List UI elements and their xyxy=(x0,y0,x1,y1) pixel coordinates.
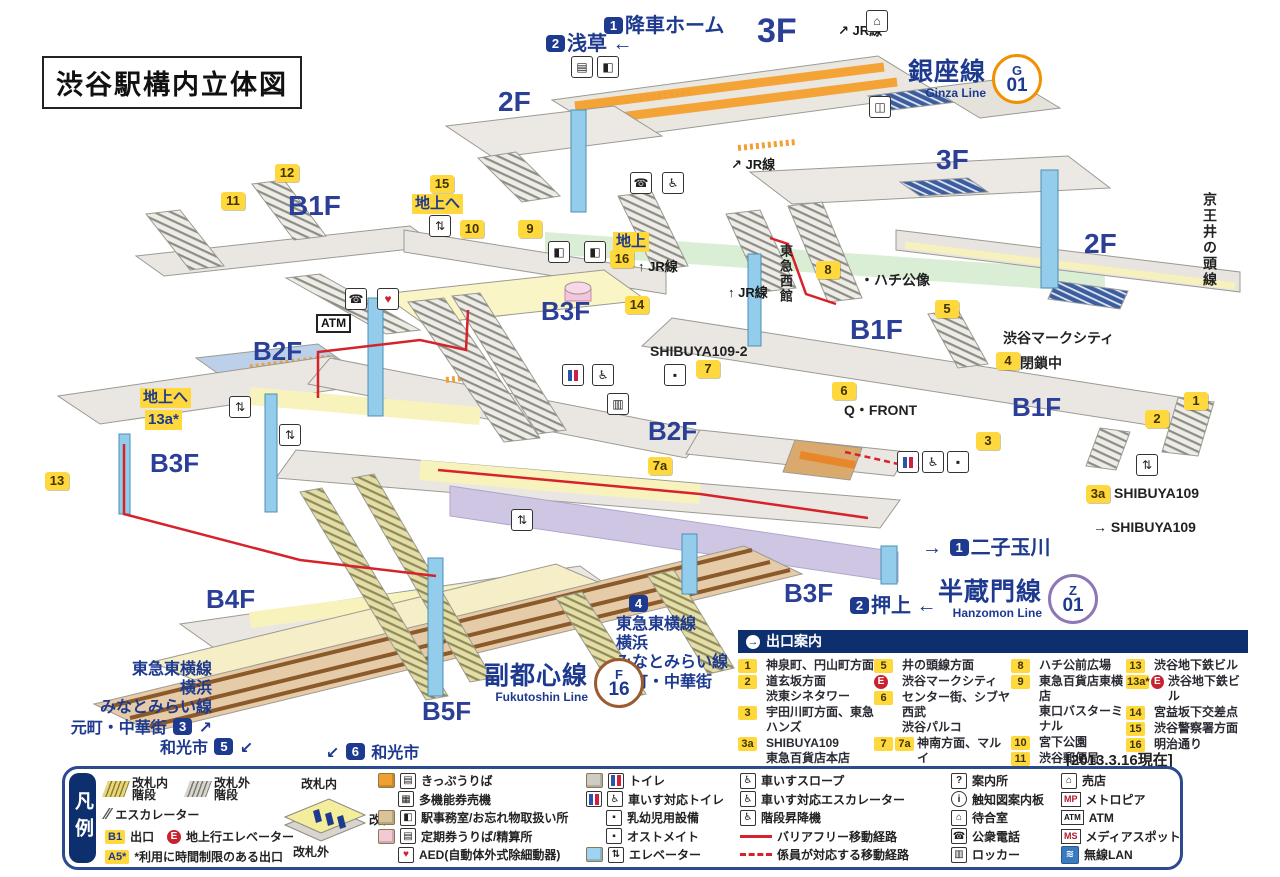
legend-item: ♥AED(自動体外式除細動器) xyxy=(378,847,568,862)
legend-item: E地上行エレベーター xyxy=(167,830,294,844)
ground-tag: 地上 xyxy=(613,232,649,252)
direction-label: 4 xyxy=(627,595,650,615)
legend-item-label: トイレ xyxy=(629,772,665,789)
floor-label-b1f: B1F xyxy=(850,314,903,346)
baby-icon: ▪ xyxy=(664,364,686,386)
exit-guide-column-2: 5井の頭線方面E渋谷マークシティ6センター街、シブヤ西武渋谷パルコ77a神南方面… xyxy=(874,658,1011,783)
exit-icon: → xyxy=(746,635,760,649)
exit-number-badge: 10 xyxy=(1011,736,1030,750)
exit-number-badge: 13 xyxy=(1126,659,1145,673)
exit-badge-15: 15 xyxy=(430,175,454,193)
hanzomon-line-name-en: Hanzomon Line xyxy=(953,607,1042,619)
exit-destination: 東急百貨店東横店東口バスターミナル xyxy=(1039,674,1126,734)
exit-guide-row: 9東急百貨店東横店東口バスターミナル xyxy=(1011,674,1126,734)
jr-line-label: ↗ JR線 xyxy=(731,154,775,173)
exit-number-badge: 1 xyxy=(738,659,757,673)
legend-item-label: 案内所 xyxy=(972,772,1008,789)
pictogram-icon: ▤ xyxy=(400,828,416,844)
exit-chip-icon: A5* xyxy=(105,850,129,864)
exit-guide-row: 15渋谷警察署方面 xyxy=(1126,721,1246,736)
place-label: ・ハチ公像 xyxy=(860,270,930,290)
exit-guide-column-1: 1神泉町、円山町方面2道玄坂方面渋東シネタワー3宇田川町方面、東急ハンズ3aSH… xyxy=(738,658,874,783)
legend-panel: 凡例 改札内 階段改札外 階段∕∕エスカレーターB1出口E地上行エレベーターA5… xyxy=(62,766,1183,870)
floor-label-b2f: B2F xyxy=(253,336,302,367)
legend-item-label: バリアフリー移動経路 xyxy=(777,828,897,845)
facility-cube-icon xyxy=(586,773,603,788)
exit-guide-row: 2道玄坂方面渋東シネタワー xyxy=(738,674,874,704)
staff-assist-route-swatch xyxy=(740,853,772,856)
exit-destination: 宮下公園 xyxy=(1039,735,1087,750)
elevator-icon: ⇅ xyxy=(1136,454,1158,476)
legend-item-label: 売店 xyxy=(1082,772,1106,789)
legend-item: i触知図案内板 xyxy=(951,792,1044,807)
toilet-icon xyxy=(562,364,584,386)
shop-icon: ⌂ xyxy=(866,10,888,32)
elevator-icon: ⇅ xyxy=(429,215,451,237)
exit-number-badge: 15 xyxy=(1126,722,1145,736)
legend-item-label: 定期券うりば/精算所 xyxy=(421,828,532,845)
bus-icon: ◫ xyxy=(869,96,891,118)
exit-destination: ハチ公前広場 xyxy=(1039,658,1111,673)
legend-item: MSメディアスポット xyxy=(1061,829,1181,844)
legend-item: ♿車いす対応トイレ xyxy=(586,792,724,807)
pictogram-icon: ▪ xyxy=(606,810,622,826)
hanzomon-line-name: 半蔵門線 xyxy=(938,580,1042,605)
ginza-line-name: 銀座線 xyxy=(908,60,986,85)
ginza-line-name-en: Ginza Line xyxy=(925,87,986,99)
facility-cube-icon xyxy=(378,773,395,788)
pictogram-icon: ☎ xyxy=(951,828,967,844)
ginza-station-code: G 01 xyxy=(992,54,1042,104)
fukutoshin-line-name: 副都心線 xyxy=(484,664,588,689)
legend-group-accessibility: ♿車いすスロープ♿車いす対応エスカレーター♿階段昇降機バリアフリー移動経路係員が… xyxy=(740,773,909,866)
exit-badge-13: 13 xyxy=(45,472,69,490)
phone-icon: ☎ xyxy=(630,172,652,194)
exit-badge-11: 11 xyxy=(221,192,245,210)
legend-item: ▤定期券うりば/精算所 xyxy=(378,829,568,844)
brand-chip-icon: MS xyxy=(1061,829,1081,844)
floor-label-b2f: B2F xyxy=(648,416,697,447)
shibuya-station-3d-map: 3F2F3F2FB1FB1FB1FB2FB2FB3FB3FB3FB4FB5F12… xyxy=(0,0,1280,877)
legend-group-services: ?案内所i触知図案内板⌂待合室☎公衆電話▥ロッカー xyxy=(951,773,1044,866)
locker-icon: ▥ xyxy=(607,393,629,415)
direction-label: 2押上 ← xyxy=(848,594,937,618)
pictogram-icon: i xyxy=(951,791,967,807)
legend-item-label: AED(自動体外式除細動器) xyxy=(419,846,560,863)
legend-item-label: きっぷうりば xyxy=(421,772,493,789)
jr-line-label: ↑ JR線 xyxy=(638,256,678,275)
legend-group-facilities: トイレ♿車いす対応トイレ▪乳幼児用設備▪オストメイト⇅エレベーター xyxy=(586,773,724,866)
page-title: 渋谷駅構内立体図 xyxy=(42,56,302,109)
barrier-free-route-swatch xyxy=(740,835,772,838)
aed-icon: ♥ xyxy=(377,288,399,310)
legend-item-label: エスカレーター xyxy=(115,809,199,821)
exit-badge-8: 8 xyxy=(816,261,840,279)
exit-badge-16: 16 xyxy=(610,250,634,268)
exit-number-badge: 2 xyxy=(738,675,757,689)
exit-guide-row: 13渋谷地下鉄ビル xyxy=(1126,658,1246,673)
hanzomon-line-badge: 半蔵門線 Hanzomon Line Z 01 xyxy=(938,574,1098,624)
pictogram-icon: ▦ xyxy=(398,791,414,807)
floor-label-3f: 3F xyxy=(936,144,969,176)
legend-item-label: 係員が対応する移動経路 xyxy=(777,846,909,863)
inside-gate-stairs-icon xyxy=(102,781,130,797)
legend-item-label: 出口 xyxy=(130,831,154,843)
exit-badge-7: 7 xyxy=(696,360,720,378)
legend-group-shops: ⌂売店MPメトロピアATMATMMSメディアスポット≋無線LAN xyxy=(1061,773,1181,866)
elevator-chip-icon: E xyxy=(167,830,181,844)
legend-item: ATMATM xyxy=(1061,810,1181,825)
floor-label-b3f: B3F xyxy=(784,578,833,609)
ground-tag: 13a* xyxy=(145,410,182,430)
fukutoshin-line-name-en: Fukutoshin Line xyxy=(495,691,588,703)
aed-icon: ♥ xyxy=(398,847,414,863)
wheelchair-icon: ♿ xyxy=(592,364,614,386)
exit-destination: 宮益坂下交差点 xyxy=(1154,705,1238,720)
exit-guide-title: 出口案内 xyxy=(766,630,822,653)
legend-item-label: ATM xyxy=(1089,811,1114,825)
exit-badge-3a: 3a xyxy=(1086,485,1110,503)
exit-destination: SHIBUYA109東急百貨店本店 xyxy=(766,736,850,766)
pictogram-icon: ♿ xyxy=(740,773,756,789)
wheelchair-icon: ♿ xyxy=(922,451,944,473)
legend-item: ∕∕エスカレーター xyxy=(105,809,199,821)
ginza-line-badge: 銀座線 Ginza Line G 01 xyxy=(908,54,1042,104)
pictogram-icon: ? xyxy=(951,773,967,789)
exit-chip-icon: B1 xyxy=(105,830,125,844)
floor-label-b5f: B5F xyxy=(422,696,471,727)
exit-destination: 宇田川町方面、東急ハンズ xyxy=(766,705,874,735)
elevator-exit-badge: E xyxy=(874,675,888,689)
office-icon: ◧ xyxy=(597,56,619,78)
exit-guide-row: 10宮下公園 xyxy=(1011,735,1126,750)
office-icon: ◧ xyxy=(548,241,570,263)
direction-label: 2浅草 ← xyxy=(544,32,633,56)
exit-number-badge: 6 xyxy=(874,691,893,705)
direction-label: 東急東横線横浜みなとみらい線元町・中華街 3 ↗ xyxy=(52,660,212,738)
pictogram-icon: ◧ xyxy=(400,810,416,826)
place-label: SHIBUYA109-2 xyxy=(650,343,748,359)
exit-badge-1: 1 xyxy=(1184,392,1208,410)
exit-badge-4: 4 xyxy=(996,352,1020,370)
exit-badge-7a: 7a xyxy=(648,457,672,475)
pictogram-icon: ♿ xyxy=(740,810,756,826)
exit-badge-3: 3 xyxy=(976,432,1000,450)
gate-diagram-drawing xyxy=(279,789,379,849)
exit-number-badge: 3a xyxy=(738,737,757,751)
direction-label: → 1二子玉川 xyxy=(922,536,1051,560)
legend-item-label: 車いす対応エスカレーター xyxy=(761,791,905,808)
exit-destination: 渋谷地下鉄ビル xyxy=(1168,674,1246,704)
direction-label: ↙ 6 和光市 xyxy=(326,743,419,763)
floor-label-b1f: B1F xyxy=(288,190,341,222)
legend-group-ticketing: ▤きっぷうりば▦多機能券売機◧駅事務室/お忘れ物取扱い所▤定期券うりば/精算所♥… xyxy=(378,773,568,866)
legend-item: ▥ロッカー xyxy=(951,847,1044,862)
legend-item: ≋無線LAN xyxy=(1061,847,1181,862)
legend-item-label: 公衆電話 xyxy=(972,828,1020,845)
exit-number-badge: 5 xyxy=(874,659,893,673)
legend-item: ⌂売店 xyxy=(1061,773,1181,788)
floor-label-b4f: B4F xyxy=(206,584,255,615)
exit-number-badge: 8 xyxy=(1011,659,1030,673)
place-label: Q・FRONT xyxy=(844,400,917,420)
exit-badge-14: 14 xyxy=(625,296,649,314)
legend-item: ♿車いす対応エスカレーター xyxy=(740,792,909,807)
exit-badge-12: 12 xyxy=(275,164,299,182)
exit-guide-row: 1神泉町、円山町方面 xyxy=(738,658,874,673)
legend-item-label: ロッカー xyxy=(972,846,1020,863)
exit-number-badge: 7 xyxy=(874,737,893,751)
legend-item: ▪オストメイト xyxy=(586,829,724,844)
legend-item-label: 地上行エレベーター xyxy=(186,831,294,843)
pictogram-icon: ▥ xyxy=(951,847,967,863)
pictogram-icon: ♿ xyxy=(607,791,623,807)
exit-destination: 神泉町、円山町方面 xyxy=(766,658,874,673)
legend-item: ♿車いすスロープ xyxy=(740,773,909,788)
legend-item: ♿階段昇降機 xyxy=(740,810,909,825)
floor-label-2f: 2F xyxy=(498,86,531,118)
legend-item: トイレ xyxy=(586,773,724,788)
exit-destination: 渋谷警察署方面 xyxy=(1154,721,1238,736)
exit-guide-row: 8ハチ公前広場 xyxy=(1011,658,1126,673)
elevator-icon: ⇅ xyxy=(511,509,533,531)
legend-item: 改札内 階段 xyxy=(105,777,168,801)
exit-guide-row: 6センター街、シブヤ西武渋谷パルコ xyxy=(874,690,1011,735)
legend-item: ▪乳幼児用設備 xyxy=(586,810,724,825)
atm-sign: ATM xyxy=(316,314,351,333)
legend-item: ☎公衆電話 xyxy=(951,829,1044,844)
exit-number-badge: 11 xyxy=(1011,752,1030,766)
exit-destination: 井の頭線方面 xyxy=(902,658,974,673)
legend-item-label: エレベーター xyxy=(629,846,701,863)
phone-icon: ☎ xyxy=(345,288,367,310)
floor-label-b3f: B3F xyxy=(150,448,199,479)
pictogram-icon: ⇅ xyxy=(608,847,624,863)
place-label: → SHIBUYA109 xyxy=(1093,519,1196,535)
legend-item-label: 乳幼児用設備 xyxy=(627,809,699,826)
facility-cube-icon xyxy=(586,847,603,862)
toilet-icon xyxy=(586,791,602,807)
exit-badge-2: 2 xyxy=(1145,410,1169,428)
pictogram-icon: ⌂ xyxy=(1061,773,1077,789)
elevator-icon: ⇅ xyxy=(279,424,301,446)
ticket-icon: ▤ xyxy=(571,56,593,78)
pictogram-icon: ♿ xyxy=(740,791,756,807)
hanzomon-station-code: Z 01 xyxy=(1048,574,1098,624)
ground-tag: 地上へ xyxy=(412,194,463,214)
exit-guide-row: 3宇田川町方面、東急ハンズ xyxy=(738,705,874,735)
legend-item: ⇅エレベーター xyxy=(586,847,724,862)
brand-chip-icon: MP xyxy=(1061,792,1081,807)
wheelchair-icon: ♿ xyxy=(662,172,684,194)
exit-number-badge: 7a xyxy=(895,737,914,751)
legend-item-label: 車いす対応トイレ xyxy=(628,791,724,808)
exit-destination: 渋谷地下鉄ビル xyxy=(1154,658,1238,673)
legend-item: 係員が対応する移動経路 xyxy=(740,847,909,862)
place-label: SHIBUYA109 xyxy=(1114,485,1199,501)
exit-number-badge: 9 xyxy=(1011,675,1030,689)
fukutoshin-line-badge: 副都心線 Fukutoshin Line F 16 xyxy=(484,658,644,708)
office-icon: ◧ xyxy=(584,241,606,263)
legend-item: 改札外 階段 xyxy=(187,777,250,801)
outside-gate-stairs-icon xyxy=(184,781,212,797)
exit-number-badge: 14 xyxy=(1126,706,1145,720)
legend-item-label: 改札外 階段 xyxy=(214,777,250,801)
exit-guide-row: 3aSHIBUYA109東急百貨店本店 xyxy=(738,736,874,766)
legend-item: ◧駅事務室/お忘れ物取扱い所 xyxy=(378,810,568,825)
place-label-vertical: 東急西館 xyxy=(776,244,795,304)
legend-item-label: メトロピア xyxy=(1086,791,1146,808)
legend-item-label: 多機能券売機 xyxy=(419,791,491,808)
legend-item-label: オストメイト xyxy=(627,828,699,845)
ground-tag: 地上へ xyxy=(140,388,191,408)
legend-item: ▤きっぷうりば xyxy=(378,773,568,788)
exit-badge-6: 6 xyxy=(832,382,856,400)
facility-cube-icon xyxy=(378,829,395,844)
escalator-icon: ∕∕ xyxy=(105,809,110,821)
legend-item: ⌂待合室 xyxy=(951,810,1044,825)
legend-item-label: *利用に時間制限のある出口 xyxy=(134,851,283,863)
legend-item: B1出口 xyxy=(105,830,154,844)
facility-cube-icon xyxy=(378,810,395,825)
direction-label: 和光市 5 ↙ xyxy=(160,738,253,758)
fukutoshin-station-code: F 16 xyxy=(594,658,644,708)
elevator-exit-badge: E xyxy=(1151,675,1164,689)
exit-guide-row: 14宮益坂下交差点 xyxy=(1126,705,1246,720)
legend-item-label: 階段昇降機 xyxy=(761,809,821,826)
place-label: 渋谷マークシティ xyxy=(1003,328,1114,348)
legend-item-label: 無線LAN xyxy=(1084,846,1133,863)
wireless-lan-icon: ≋ xyxy=(1061,846,1079,864)
atm-chip-icon: ATM xyxy=(1061,810,1084,825)
jr-line-label: ↑ JR線 xyxy=(728,282,768,301)
place-label: 閉鎖中 xyxy=(1020,353,1062,373)
pictogram-icon: ▪ xyxy=(606,828,622,844)
exit-badge-10: 10 xyxy=(460,220,484,238)
legend-item: ?案内所 xyxy=(951,773,1044,788)
legend-item-label: 触知図案内板 xyxy=(972,791,1044,808)
legend-item: MPメトロピア xyxy=(1061,792,1181,807)
legend-item: ▦多機能券売機 xyxy=(378,792,568,807)
legend-item-label: 待合室 xyxy=(972,809,1008,826)
floor-label-2f: 2F xyxy=(1084,228,1117,260)
pictogram-icon: ⌂ xyxy=(951,810,967,826)
floor-label-b1f: B1F xyxy=(1012,392,1061,423)
place-label-vertical: 京王井の頭線 xyxy=(1200,192,1220,288)
baby-icon: ▪ xyxy=(947,451,969,473)
legend-item: バリアフリー移動経路 xyxy=(740,829,909,844)
legend-item-label: 車いすスロープ xyxy=(761,772,844,789)
legend-item-label: 改札内 階段 xyxy=(132,777,168,801)
pictogram-icon: ▤ xyxy=(400,773,416,789)
exit-destination: センター街、シブヤ西武渋谷パルコ xyxy=(902,690,1011,735)
floor-label-3f: 3F xyxy=(757,12,797,51)
exit-destination: 道玄坂方面渋東シネタワー xyxy=(766,674,850,704)
toilet-icon xyxy=(608,773,624,789)
legend-item-label: メディアスポット xyxy=(1086,828,1181,845)
exit-guide-header: → 出口案内 xyxy=(738,630,1248,653)
exit-guide-row: E渋谷マークシティ xyxy=(874,674,1011,689)
legend-item-label: 駅事務室/お忘れ物取扱い所 xyxy=(421,809,568,826)
exit-guide-row: 13a*E渋谷地下鉄ビル xyxy=(1126,674,1246,704)
exit-number-badge: 3 xyxy=(738,706,757,720)
floor-label-b3f: B3F xyxy=(541,296,590,327)
gate-outside-label: 改札外 xyxy=(293,843,329,860)
exit-guide-row: 5井の頭線方面 xyxy=(874,658,1011,673)
legend-tab: 凡例 xyxy=(69,773,96,863)
exit-badge-9: 9 xyxy=(518,220,542,238)
elevator-icon: ⇅ xyxy=(229,396,251,418)
toilet-icon xyxy=(897,451,919,473)
legend-item: A5**利用に時間制限のある出口 xyxy=(105,850,283,864)
exit-badge-5: 5 xyxy=(935,300,959,318)
exit-number-badge: 13a* xyxy=(1126,675,1149,689)
exit-destination: 渋谷マークシティ xyxy=(902,674,997,689)
